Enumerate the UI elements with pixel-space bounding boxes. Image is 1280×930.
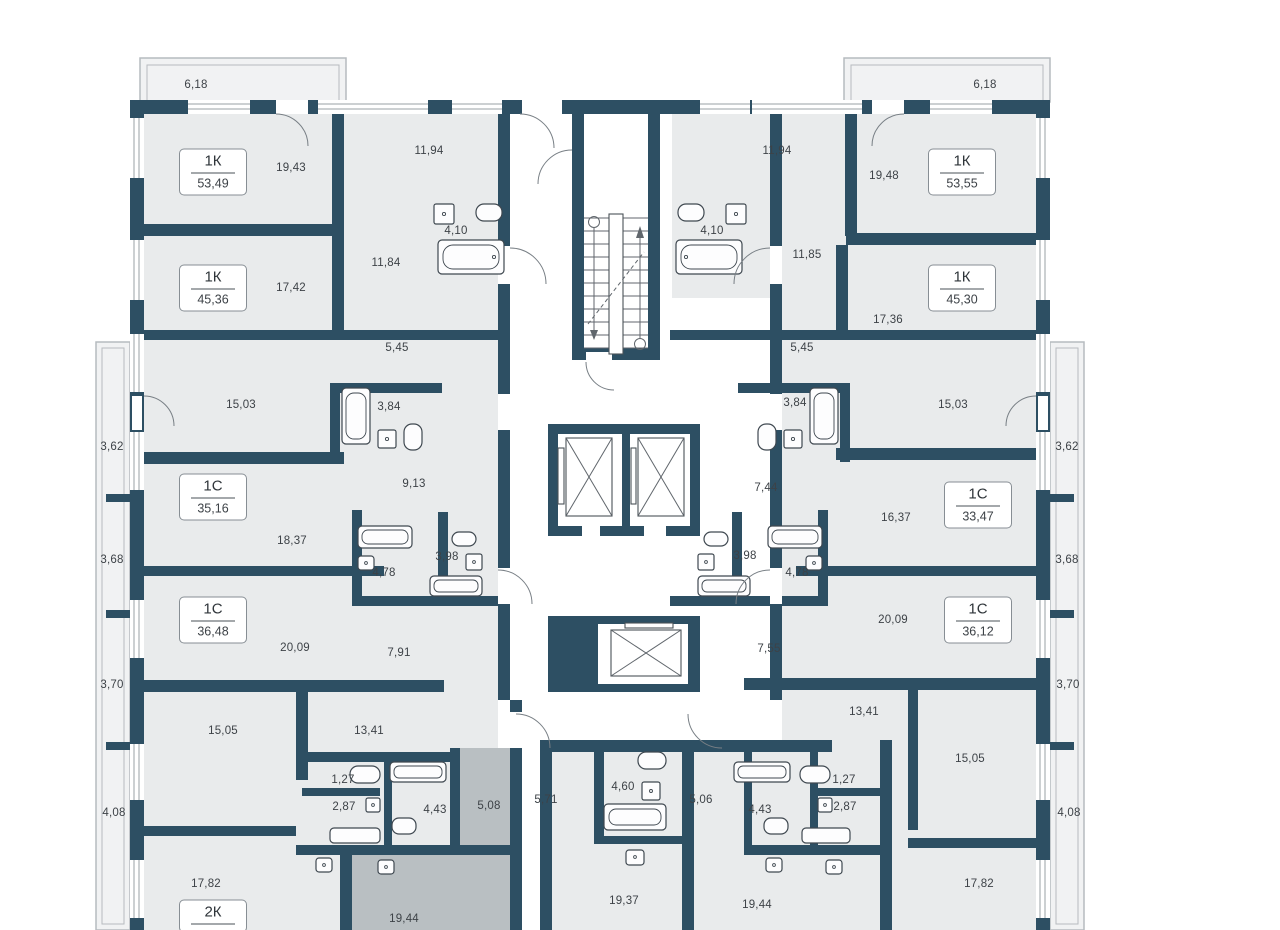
staircase — [584, 214, 648, 354]
floor-plan-svg — [0, 0, 1280, 930]
elevators — [558, 438, 684, 516]
service-shaft — [611, 623, 681, 676]
floor-plan: 6,1819,4311,944,1011,8417,425,4515,033,8… — [0, 0, 1280, 930]
